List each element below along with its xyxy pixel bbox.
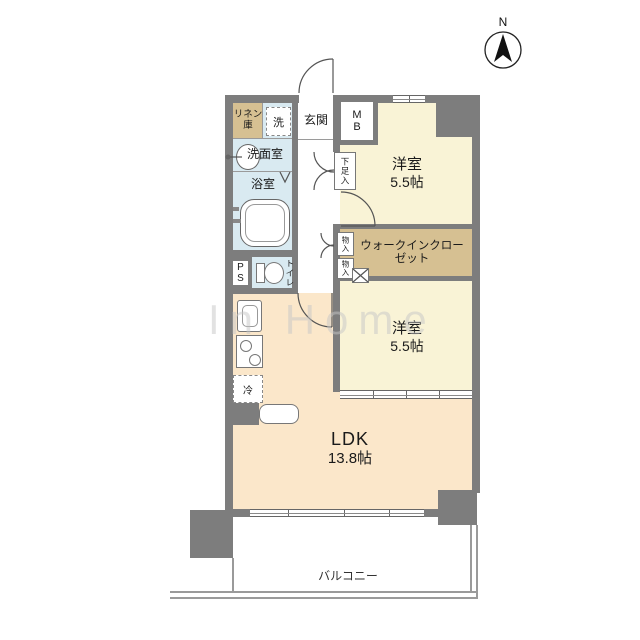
- bedroom2-label: 洋室 5.5帖: [371, 316, 443, 358]
- balcony-label: バルコニー: [298, 569, 398, 585]
- closet-door-arc-top: [321, 233, 334, 246]
- closet-door-arc-bottom: [321, 245, 334, 258]
- wic-label: ウォークインクローゼット: [357, 235, 467, 271]
- bath-fitting2-icon: [233, 219, 241, 223]
- toilet-label: トイレ: [283, 259, 295, 288]
- bathroom-label: 浴室: [246, 177, 280, 192]
- bathroom-folding-door-icon: [280, 172, 290, 182]
- entrance-door-arc: [299, 59, 333, 93]
- bath-fitting-icon: [233, 207, 239, 211]
- faucet-knob-icon: [226, 155, 231, 160]
- linen-closet-label: リネン庫: [233, 105, 263, 137]
- entrance-label: 玄関: [298, 113, 334, 129]
- shoe-door-arc-bottom: [314, 170, 334, 190]
- compass-icon: N: [480, 8, 526, 72]
- shoe-door-arc-top: [314, 152, 334, 172]
- bedroom1-label: 洋室 5.5帖: [371, 152, 443, 194]
- ldk-door-arc: [298, 293, 332, 327]
- floor-plan: MB 下足入 PS 物入 物入 洗 冷: [0, 0, 640, 640]
- washroom-label: 洗面室: [240, 147, 290, 163]
- door-arcs-layer: [0, 0, 640, 640]
- compass-north-label: N: [499, 15, 508, 29]
- bedroom1-door-arc: [341, 192, 375, 226]
- ldk-label: LDK 13.8帖: [300, 426, 400, 470]
- compass-needle: [494, 34, 512, 62]
